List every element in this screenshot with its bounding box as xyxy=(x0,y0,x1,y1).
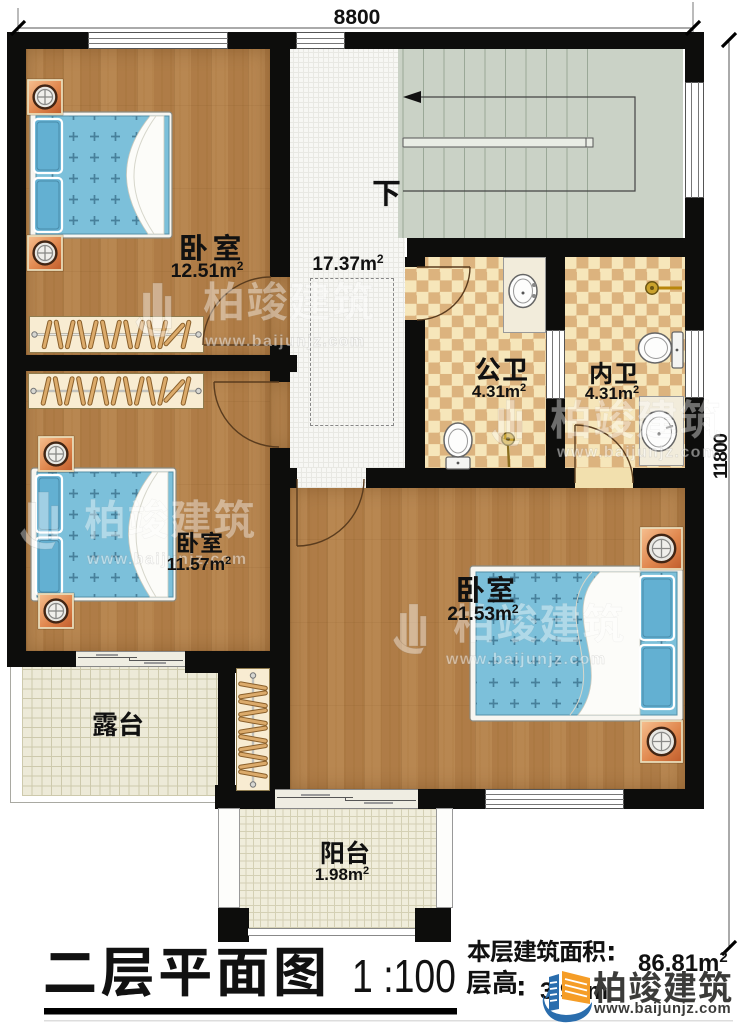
svg-text:1 :100: 1 :100 xyxy=(352,950,456,1002)
svg-text:4.31m2: 4.31m2 xyxy=(472,382,526,401)
svg-text:17.37m2: 17.37m2 xyxy=(312,252,383,275)
svg-text:www.baijunjz.com: www.baijunjz.com xyxy=(445,651,607,668)
svg-text:4.31m2: 4.31m2 xyxy=(585,384,639,403)
svg-text:www.baijunjz.com: www.baijunjz.com xyxy=(204,333,366,350)
svg-text:www.baijunjz.com: www.baijunjz.com xyxy=(556,444,718,461)
svg-text:11.57m2: 11.57m2 xyxy=(167,554,232,574)
svg-text:www.baijunjz.com: www.baijunjz.com xyxy=(593,1001,731,1017)
svg-text:12.51m2: 12.51m2 xyxy=(171,259,244,282)
svg-text:1.98m2: 1.98m2 xyxy=(315,865,369,884)
svg-text:8800: 8800 xyxy=(334,6,381,29)
svg-text:21.53m2: 21.53m2 xyxy=(447,602,518,625)
